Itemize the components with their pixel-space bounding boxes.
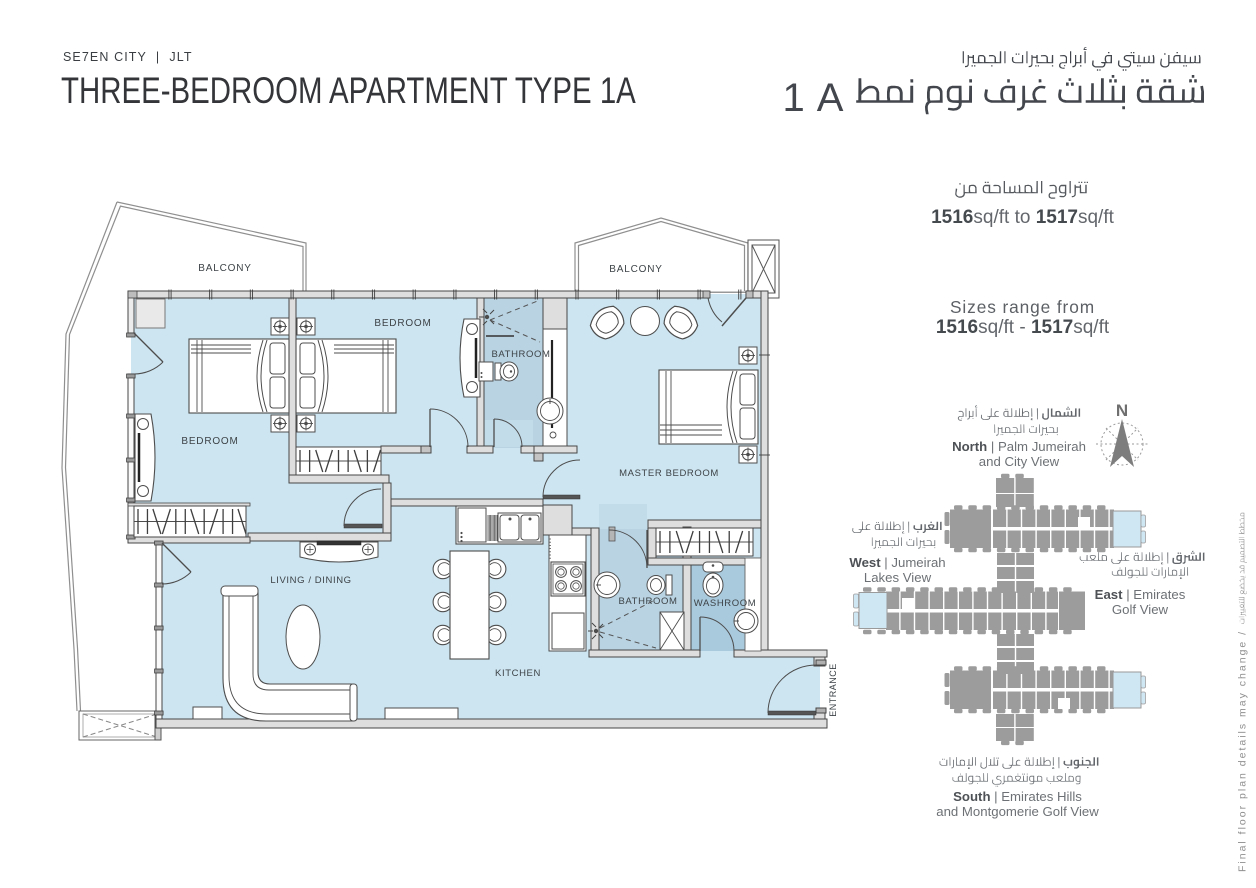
svg-text:Final floor plan details may c: Final floor plan details may change / [1237,630,1249,872]
svg-text:BATHROOM: BATHROOM [492,349,551,360]
svg-text:WASHROOM: WASHROOM [694,598,757,609]
svg-text:BEDROOM: BEDROOM [181,436,238,447]
svg-text:LIVING / DINING: LIVING / DINING [270,575,351,586]
svg-text:MASTER BEDROOM: MASTER BEDROOM [619,468,719,479]
svg-text:ENTRANCE: ENTRANCE [828,663,838,717]
svg-text:KITCHEN: KITCHEN [495,668,541,679]
svg-text:N: N [1116,401,1128,420]
svg-text:BATHROOM: BATHROOM [619,596,678,607]
svg-text:BALCONY: BALCONY [198,263,251,274]
svg-text:BALCONY: BALCONY [609,264,662,275]
svg-text:BEDROOM: BEDROOM [374,318,431,329]
